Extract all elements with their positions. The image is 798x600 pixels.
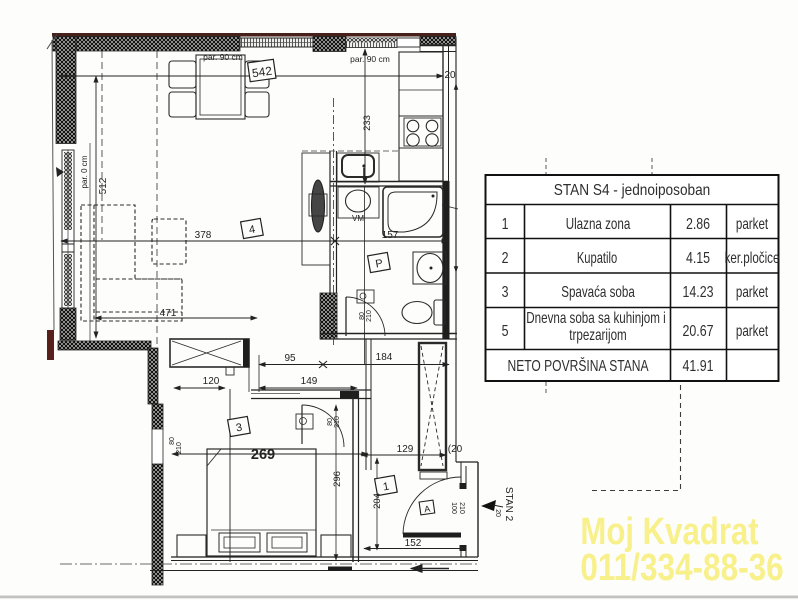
svg-text:100: 100 [450,502,457,514]
svg-text:(20: (20 [448,444,463,455]
svg-text:210: 210 [458,502,465,514]
svg-text:Dnevna soba sa kuhinjom i: Dnevna soba sa kuhinjom i [526,309,665,326]
svg-text:80: 80 [359,312,366,320]
svg-text:5: 5 [502,322,509,340]
svg-text:14.23: 14.23 [683,283,714,301]
svg-text:20: 20 [494,509,501,517]
svg-text:233: 233 [362,115,373,131]
svg-text:378: 378 [195,230,212,241]
svg-text:129: 129 [397,444,414,455]
svg-text:184: 184 [376,352,393,363]
svg-text:512: 512 [98,177,109,194]
svg-text:471: 471 [160,308,177,319]
svg-text:2.86: 2.86 [686,215,710,233]
svg-text:157: 157 [382,230,399,241]
svg-text:149: 149 [301,376,318,387]
svg-text:STAN S4 - jednoiposoban: STAN S4 - jednoiposoban [554,182,710,199]
svg-text:STAN 2: STAN 2 [503,487,514,522]
svg-text:parket: parket [736,283,768,300]
svg-text:par. 0 cm: par. 0 cm [80,155,89,188]
svg-text:41.91: 41.91 [683,357,714,375]
svg-text:269: 269 [251,447,275,463]
svg-text:80: 80 [169,437,176,445]
svg-text:204: 204 [372,493,383,509]
svg-text:20.67: 20.67 [683,322,714,340]
svg-text:152: 152 [405,538,422,549]
svg-text:Kupatilo: Kupatilo [577,249,617,266]
svg-text:parket: parket [736,322,768,339]
svg-text:210: 210 [334,416,341,428]
svg-text:2: 2 [502,249,509,267]
svg-text:ker.pločice: ker.pločice [725,249,780,266]
svg-text:542: 542 [251,64,273,81]
svg-text:par. 90 cm: par. 90 cm [203,52,243,62]
svg-text:NETO POVRŠINA STANA: NETO POVRŠINA STANA [507,357,649,375]
svg-text:parket: parket [736,215,768,232]
svg-text:210: 210 [176,442,183,454]
svg-text:trpezarijom: trpezarijom [569,326,626,343]
svg-text:210: 210 [366,310,373,322]
svg-text:80: 80 [327,418,334,426]
svg-text:Ulazna zona: Ulazna zona [566,215,631,232]
svg-text:011/334-88-36: 011/334-88-36 [580,546,783,588]
svg-text:20: 20 [444,70,456,81]
svg-text:3: 3 [502,283,509,301]
svg-text:4.15: 4.15 [686,249,710,267]
svg-text:120: 120 [203,376,220,387]
svg-text:1: 1 [502,215,509,233]
svg-text:VM: VM [352,214,364,223]
svg-text:Spavaća soba: Spavaća soba [561,283,635,300]
svg-text:296: 296 [332,471,343,487]
svg-text:par. 90 cm: par. 90 cm [350,54,390,64]
svg-text:95: 95 [284,353,296,364]
